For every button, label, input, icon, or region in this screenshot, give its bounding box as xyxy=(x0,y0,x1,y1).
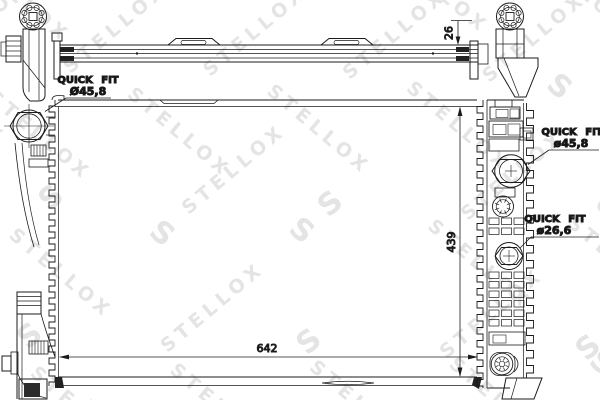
quick-fit-lower-right-diameter: ø26,6 xyxy=(537,224,572,237)
tank-fins xyxy=(489,218,524,326)
dim-642-text: 642 xyxy=(257,342,278,355)
radiator-technical-drawing: SSTELLOXSTELLOXSSTELLOXSTELLOXSTELLOXSTE… xyxy=(0,0,600,400)
rivet-dot xyxy=(432,52,434,54)
dim-439-text: 439 xyxy=(445,232,458,253)
quick-fit-inlet-diameter: Ø45,8 xyxy=(70,85,107,98)
dim-26-text: 26 xyxy=(443,26,456,40)
quick-fit-upper-right-diameter: ø45,8 xyxy=(554,137,589,150)
drawing-svg: SSTELLOXSTELLOXSSTELLOXSTELLOXSTELLOXSTE… xyxy=(0,0,600,400)
rivet-dot xyxy=(136,52,138,54)
